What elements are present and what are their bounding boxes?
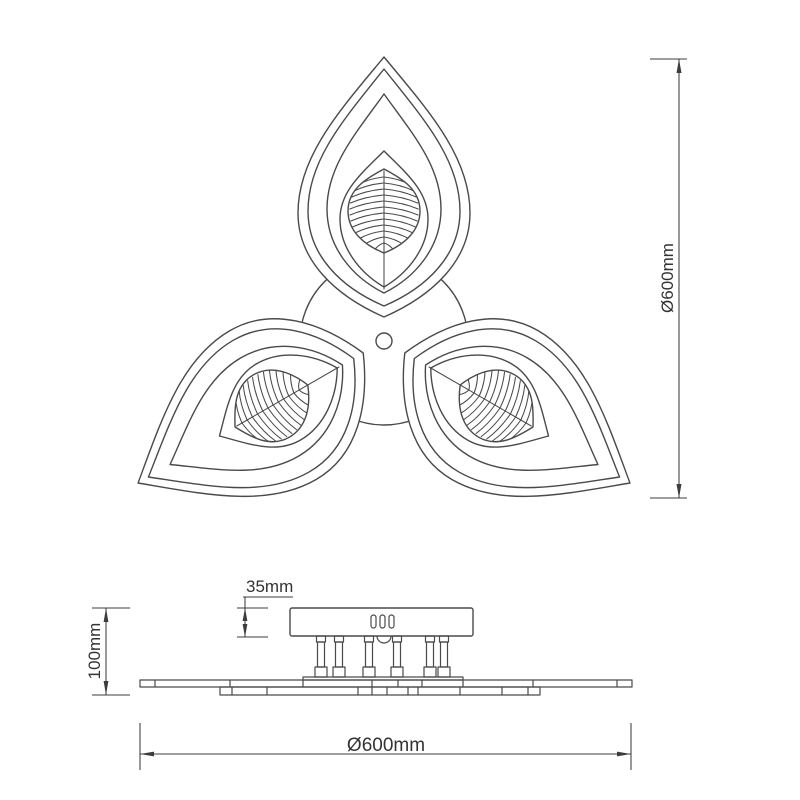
mounting-posts [315, 636, 450, 677]
arrow-down-icon [104, 681, 109, 695]
vertical-diameter-label: Ø600mm [658, 243, 677, 313]
fixture-height-label: 100mm [85, 623, 104, 680]
arrow-up-icon [677, 59, 682, 73]
upper-plate-joints [155, 680, 617, 687]
dimension-fixture-height: 100mm [85, 608, 130, 695]
arrow-down-icon [243, 624, 248, 637]
arrow-up-icon [243, 608, 248, 621]
leaf-arm-top [298, 57, 470, 317]
canopy [290, 608, 473, 636]
mounting-hole [376, 333, 392, 349]
technical-drawing-canvas: Ø600mm [0, 0, 800, 800]
lower-plate-joints [232, 687, 528, 695]
arrow-left-icon [140, 752, 154, 757]
dimension-vertical-diameter: Ø600mm [650, 59, 687, 498]
arrow-down-icon [677, 484, 682, 498]
disc-body [140, 677, 632, 695]
dimension-canopy-height: 35mm [237, 577, 293, 637]
horizontal-diameter-label: Ø600mm [347, 735, 425, 756]
dimension-horizontal-diameter: Ø600mm [140, 723, 631, 770]
arrow-up-icon [104, 608, 109, 622]
leaf-arm-lower-right [362, 279, 673, 558]
leaf-arm-lower-left [95, 279, 406, 558]
arrow-right-icon [617, 752, 631, 757]
top-view [95, 57, 673, 557]
side-view [140, 608, 632, 695]
canopy-height-label: 35mm [246, 577, 293, 596]
center-dome [377, 636, 391, 643]
